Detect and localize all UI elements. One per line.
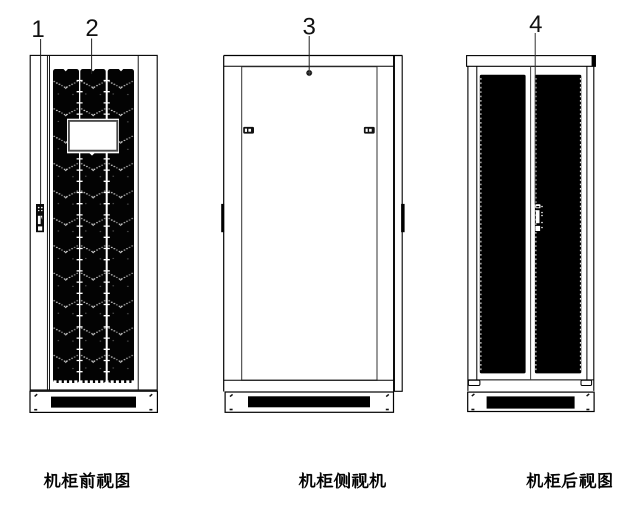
svg-text:1: 1 [31, 16, 44, 43]
svg-text:3: 3 [303, 14, 316, 41]
svg-text:4: 4 [529, 11, 542, 38]
svg-text:2: 2 [85, 15, 98, 42]
